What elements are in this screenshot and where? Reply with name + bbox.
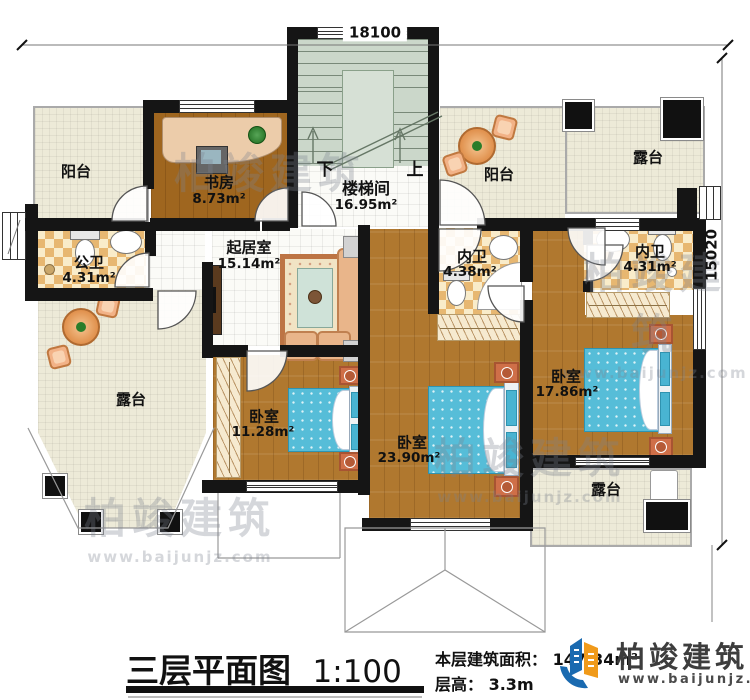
pillow: [506, 390, 517, 426]
table-vase: [308, 290, 322, 304]
column: [663, 100, 701, 138]
wall: [428, 225, 439, 314]
plant-icon: [248, 126, 266, 144]
nightstand: [494, 362, 519, 383]
wall: [143, 100, 179, 113]
floor-area-label: 本层建筑面积：: [435, 650, 547, 669]
stair-treads-left: [298, 91, 342, 166]
bed-mid-blanket: [639, 350, 658, 430]
room-area-stairwell: 16.95m²: [335, 198, 398, 214]
wall: [143, 113, 154, 189]
room-label-bedroom-mid: 卧室: [551, 368, 581, 385]
title-underline-shadow: [128, 696, 422, 698]
brand-logo-icon: [552, 630, 614, 692]
wall: [202, 262, 213, 358]
wall: [490, 518, 533, 531]
wall: [477, 218, 595, 231]
pillow: [660, 392, 670, 426]
wall: [693, 350, 706, 468]
wall: [145, 222, 156, 256]
pillow: [660, 352, 670, 386]
wall: [520, 300, 533, 518]
window: [699, 186, 721, 220]
computer-screen: [201, 150, 221, 164]
room-label-study: 书房: [204, 174, 234, 191]
floor-height-label: 层高：: [435, 675, 483, 694]
window: [2, 212, 26, 260]
wall: [520, 225, 533, 282]
room-label-living: 起居室: [226, 239, 271, 256]
toilet-bowl-2: [447, 280, 466, 306]
wall: [362, 518, 412, 531]
wall: [677, 188, 697, 218]
wall: [202, 345, 248, 357]
room-label-balcony-tl: 阳台: [61, 163, 91, 180]
wall: [255, 100, 290, 113]
window: [410, 518, 492, 531]
room-label-stairwell: 楼梯间: [342, 180, 390, 198]
terrace-bench: [650, 470, 678, 502]
room-label-terrace-br: 露台: [591, 481, 621, 498]
room-label-public-bath: 公卫: [74, 254, 104, 271]
room-label-terrace-left: 露台: [116, 391, 146, 408]
wardrobe-1: [437, 314, 521, 341]
wall: [287, 27, 298, 228]
brand-website: www.baijunjz.com: [618, 672, 750, 687]
nightstand: [649, 437, 673, 457]
hallway-wood-floor: [532, 224, 585, 319]
stair-treads-right: [392, 112, 428, 166]
room-area-bedroom-small: 11.28m²: [232, 425, 295, 441]
room-label-terrace-tr: 露台: [633, 149, 663, 166]
room-area-public-bath: 4.31m²: [62, 271, 115, 287]
nightstand: [649, 324, 673, 344]
stair-up-label: 上: [407, 161, 424, 181]
room-label-bath-2: 内卫: [635, 243, 665, 260]
sink-2: [489, 235, 518, 260]
window: [246, 481, 338, 492]
sink-1: [110, 230, 142, 254]
floor-plan-canvas: { "dimensions": { "width": "18100", "hei…: [0, 0, 750, 700]
plan-title: 三层平面图 1:100: [126, 644, 402, 692]
room-label-bedroom-small: 卧室: [249, 408, 279, 425]
wall: [287, 27, 317, 39]
wall: [358, 355, 370, 495]
title-underline: [126, 686, 424, 693]
wall: [25, 288, 153, 301]
drain-icon-1: [44, 264, 55, 275]
patio-table: [62, 308, 100, 346]
wall: [280, 345, 370, 357]
room-area-bedroom-mid: 17.86m²: [536, 385, 599, 401]
window: [575, 457, 650, 466]
stair-down-label: 下: [317, 161, 334, 181]
floor-height-value: 3.3m: [489, 675, 534, 694]
window: [179, 100, 255, 113]
column: [565, 102, 592, 129]
dimension-height: 15020: [703, 229, 720, 281]
plan-title-text: 三层平面图: [126, 651, 291, 690]
hall-floor: [150, 230, 205, 290]
wall: [583, 225, 593, 245]
column: [646, 502, 688, 530]
floor-height-line: 层高： 3.3m: [435, 671, 534, 695]
brand-name: 柏竣建筑: [616, 634, 748, 676]
wall: [262, 218, 290, 231]
bed-large-blanket: [483, 388, 504, 472]
room-area-bedroom-large: 23.90m²: [378, 451, 441, 467]
column: [160, 512, 180, 532]
plan-scale: 1:100: [313, 654, 402, 690]
wall: [408, 27, 439, 39]
wall: [358, 225, 370, 357]
window: [595, 218, 640, 231]
pillow: [506, 432, 517, 468]
wardrobe-2: [586, 292, 670, 318]
wardrobe-3: [216, 357, 241, 478]
wall: [150, 218, 260, 231]
room-area-study: 8.73m²: [192, 192, 245, 208]
column: [45, 476, 65, 496]
stair-landing-core: [342, 70, 394, 168]
window: [693, 288, 706, 350]
wall: [640, 218, 695, 231]
brand-logo: 柏竣建筑 www.baijunjz.com: [552, 628, 748, 696]
column: [81, 512, 101, 532]
room-area-bath-1: 4.38m²: [443, 265, 496, 281]
room-label-bedroom-large: 卧室: [397, 434, 427, 451]
room-label-bath-1: 内卫: [457, 248, 487, 265]
wall: [428, 27, 439, 228]
room-label-balcony-tr: 阳台: [484, 166, 514, 183]
dimension-width: 18100: [343, 24, 407, 41]
room-area-bath-2: 4.31m²: [623, 260, 676, 276]
wall: [583, 281, 593, 292]
room-area-living: 15.14m²: [218, 257, 281, 273]
nightstand: [494, 476, 519, 497]
wall: [25, 218, 145, 231]
